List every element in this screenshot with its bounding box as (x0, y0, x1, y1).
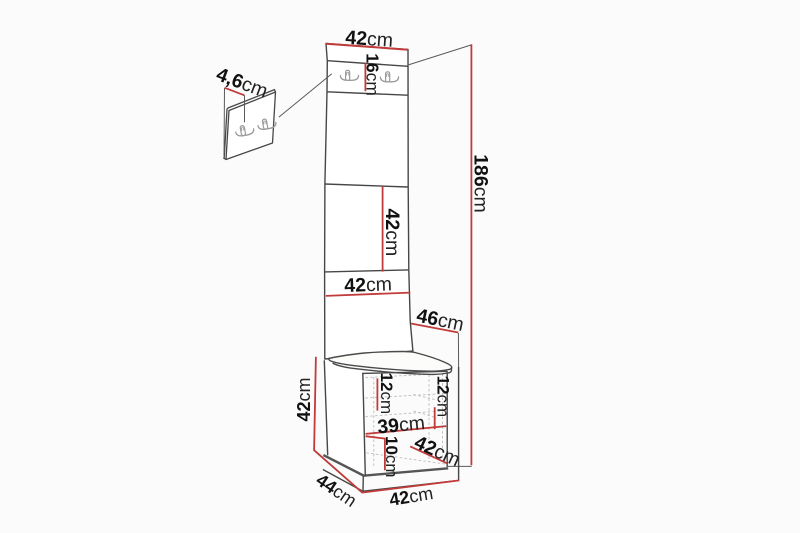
svg-text:42cm: 42cm (344, 273, 392, 297)
svg-text:16cm: 16cm (362, 53, 382, 96)
svg-text:42cm: 42cm (294, 377, 314, 421)
svg-text:12cm: 12cm (433, 376, 452, 418)
svg-text:42cm: 42cm (345, 27, 394, 52)
svg-text:42cm: 42cm (381, 209, 403, 257)
svg-text:10cm: 10cm (382, 436, 401, 478)
svg-text:12cm: 12cm (377, 373, 396, 415)
svg-text:186cm: 186cm (470, 154, 492, 213)
